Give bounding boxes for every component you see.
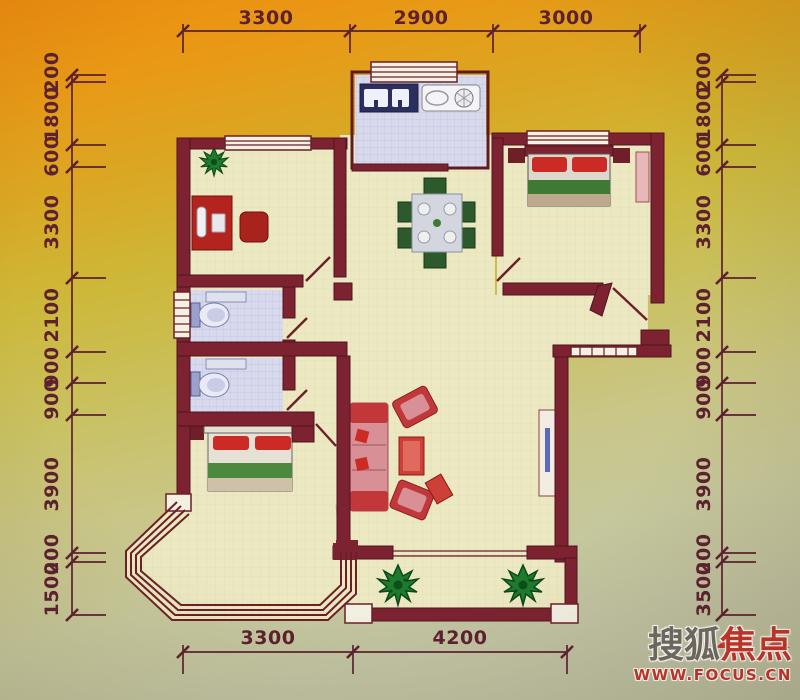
plate bbox=[444, 203, 456, 215]
sofa-arm bbox=[350, 403, 388, 423]
floor-plan-svg: 3300 2900 3000 3300 4200 200 1800 600 33… bbox=[0, 0, 800, 700]
wall bbox=[651, 133, 664, 303]
wall bbox=[177, 412, 314, 426]
wall bbox=[334, 138, 346, 277]
pillar bbox=[292, 426, 314, 442]
tv-icon bbox=[545, 428, 550, 472]
pillow bbox=[532, 157, 567, 172]
wall bbox=[503, 283, 603, 295]
desk-monitor bbox=[197, 207, 206, 237]
dimension-label: 600 bbox=[693, 135, 715, 176]
dimension-label: 1800 bbox=[693, 87, 715, 142]
toilet-seat bbox=[207, 378, 225, 392]
desk-chair bbox=[240, 212, 268, 242]
logo-brand-red: 焦点 bbox=[720, 625, 792, 666]
logo-brand: 搜狐焦点 bbox=[612, 628, 792, 664]
dimension-label: 3000 bbox=[539, 7, 594, 29]
table-centerpiece bbox=[433, 219, 441, 227]
sink-tap-2 bbox=[398, 100, 402, 107]
dimension-label: 900 bbox=[693, 378, 715, 419]
balcony-post bbox=[551, 604, 578, 623]
window bbox=[225, 136, 311, 150]
balcony-post bbox=[345, 604, 372, 623]
pillar bbox=[334, 283, 352, 300]
plate bbox=[418, 203, 430, 215]
dimension-label: 2100 bbox=[693, 288, 715, 343]
wall bbox=[283, 287, 295, 318]
dimension-label: 3300 bbox=[693, 195, 715, 250]
dimension-label: 3300 bbox=[239, 7, 294, 29]
dining-chair bbox=[398, 202, 413, 222]
pillow bbox=[255, 436, 291, 450]
nightstand bbox=[613, 148, 630, 163]
pillow bbox=[213, 436, 249, 450]
dining-chair bbox=[424, 252, 446, 268]
dimension-ticks-bottom bbox=[177, 645, 573, 674]
blanket-end bbox=[528, 194, 610, 206]
cushion bbox=[355, 457, 369, 471]
plate bbox=[444, 231, 456, 243]
blanket-stripe bbox=[528, 180, 610, 194]
sohu-focus-logo: 搜狐焦点 WWW.FOCUS.CN bbox=[612, 628, 792, 684]
wall bbox=[555, 357, 568, 562]
dimension-label: 2900 bbox=[394, 7, 449, 29]
wall bbox=[337, 356, 350, 550]
balcony-wall bbox=[347, 608, 577, 621]
wall bbox=[565, 558, 577, 608]
dimension-label: 900 bbox=[41, 378, 63, 419]
logo-brand-gray: 搜狐 bbox=[648, 625, 720, 666]
toilet-seat bbox=[207, 308, 225, 322]
dimension-label: 200 bbox=[41, 51, 63, 92]
blanket-stripe bbox=[208, 463, 292, 478]
dimension-label: 3500 bbox=[693, 562, 715, 617]
floorplan-photo: 3300 2900 3000 3300 4200 200 1800 600 33… bbox=[0, 0, 800, 700]
bath-shelf bbox=[206, 292, 246, 302]
wall bbox=[527, 546, 577, 559]
bath-shelf bbox=[206, 359, 246, 369]
dining-chair bbox=[424, 178, 446, 194]
sink-tap bbox=[374, 100, 378, 107]
dimension-label: 2100 bbox=[41, 288, 63, 343]
wall bbox=[177, 342, 347, 356]
dimension-label: 4200 bbox=[433, 627, 488, 649]
dimension-label: 3900 bbox=[693, 457, 715, 512]
window bbox=[527, 131, 609, 145]
dimension-label: 200 bbox=[693, 51, 715, 92]
dimension-label: 600 bbox=[41, 135, 63, 176]
wall bbox=[352, 164, 448, 171]
dimension-label: 1500 bbox=[41, 562, 63, 617]
blanket-end bbox=[208, 478, 292, 491]
desk-keyboard bbox=[212, 214, 225, 232]
dimension-label: 3900 bbox=[41, 457, 63, 512]
coffee-table-top bbox=[403, 441, 420, 471]
plate bbox=[418, 231, 430, 243]
sofa-arm bbox=[350, 491, 388, 511]
nightstand bbox=[508, 148, 525, 163]
pillow bbox=[572, 157, 607, 172]
wall bbox=[492, 138, 503, 256]
wall bbox=[177, 275, 303, 287]
dining-chair bbox=[398, 228, 413, 248]
dimension-label: 1800 bbox=[41, 87, 63, 142]
logo-url: WWW.FOCUS.CN bbox=[612, 666, 792, 684]
wardrobe bbox=[636, 152, 649, 202]
dimension-label: 3300 bbox=[241, 627, 296, 649]
dimension-label: 3300 bbox=[41, 195, 63, 250]
bath-window bbox=[174, 292, 190, 338]
